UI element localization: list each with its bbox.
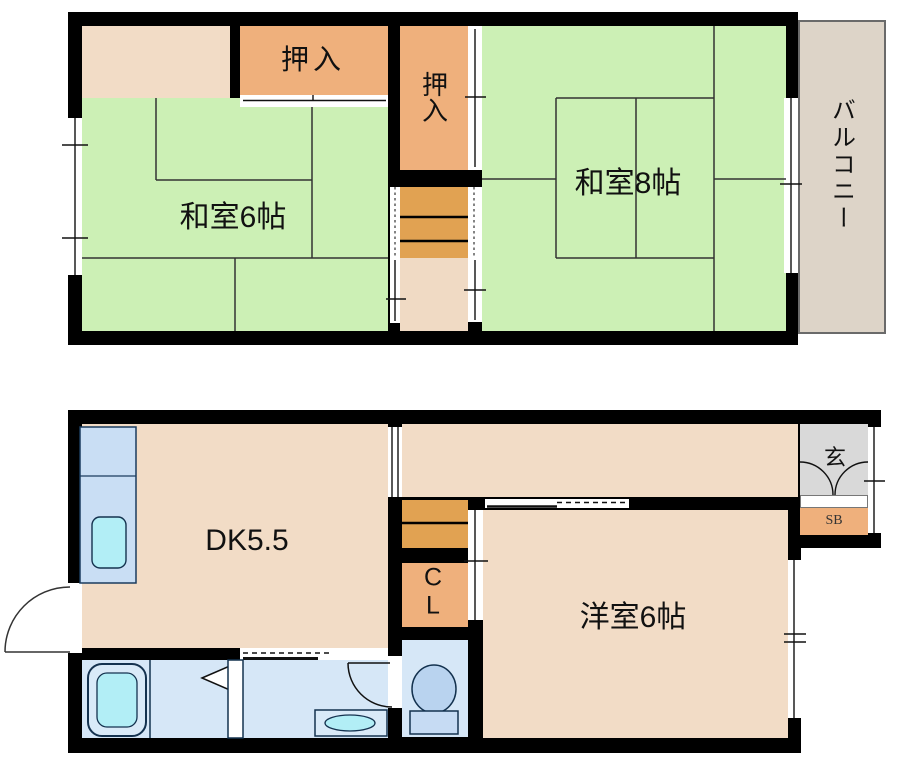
label-shoe-box: SB <box>825 513 842 529</box>
toilet-door-opening <box>388 656 402 708</box>
label-closet-cl-c: C <box>424 564 442 593</box>
landing-left-sliding-door <box>390 258 400 323</box>
kitchen-door-swing <box>5 587 70 652</box>
hallway <box>402 424 798 497</box>
label-japanese-room-6: 和室6帖 <box>180 192 287 236</box>
western-room-west-door <box>468 510 483 620</box>
toilet-room <box>402 640 468 737</box>
dk-hallway-door <box>388 427 402 497</box>
floorplan: 押入 押入 和室6帖 和室8帖 バルコニー DK5.5 洋室6帖 C L 玄 S… <box>0 0 911 757</box>
label-balcony: バルコニー <box>824 98 859 233</box>
closet-mid-sliding-door <box>468 26 482 170</box>
window-upper-left <box>68 118 82 275</box>
label-closet-top: 押入 <box>281 38 345 78</box>
room-japanese-6-alcove <box>82 26 230 98</box>
entrance-step <box>800 495 868 508</box>
stairs-upper-left-opening <box>390 187 400 258</box>
label-western-room: 洋室6帖 <box>580 592 687 636</box>
stairs-lower <box>402 497 468 548</box>
western-room-sliding-door <box>485 499 629 508</box>
washroom-bath-area <box>82 660 388 738</box>
dk-washroom-sliding-door <box>240 648 388 660</box>
closet-top-sliding-door <box>240 95 388 107</box>
window-upper-right <box>784 98 798 273</box>
label-closet-mid: 押入 <box>416 71 453 123</box>
landing-right-sliding-door <box>468 258 482 322</box>
stairs-upper-right-opening <box>468 187 482 258</box>
label-japanese-room-8: 和室8帖 <box>575 158 682 202</box>
stairs-landing <box>400 258 468 331</box>
window-entrance <box>868 427 881 533</box>
label-entrance: 玄 <box>824 440 846 472</box>
window-western-room <box>788 560 801 718</box>
label-dining-kitchen: DK5.5 <box>205 524 288 558</box>
stairs-upper <box>400 187 468 258</box>
label-closet-cl-l: L <box>426 592 440 621</box>
kitchen-door-opening <box>68 583 82 653</box>
